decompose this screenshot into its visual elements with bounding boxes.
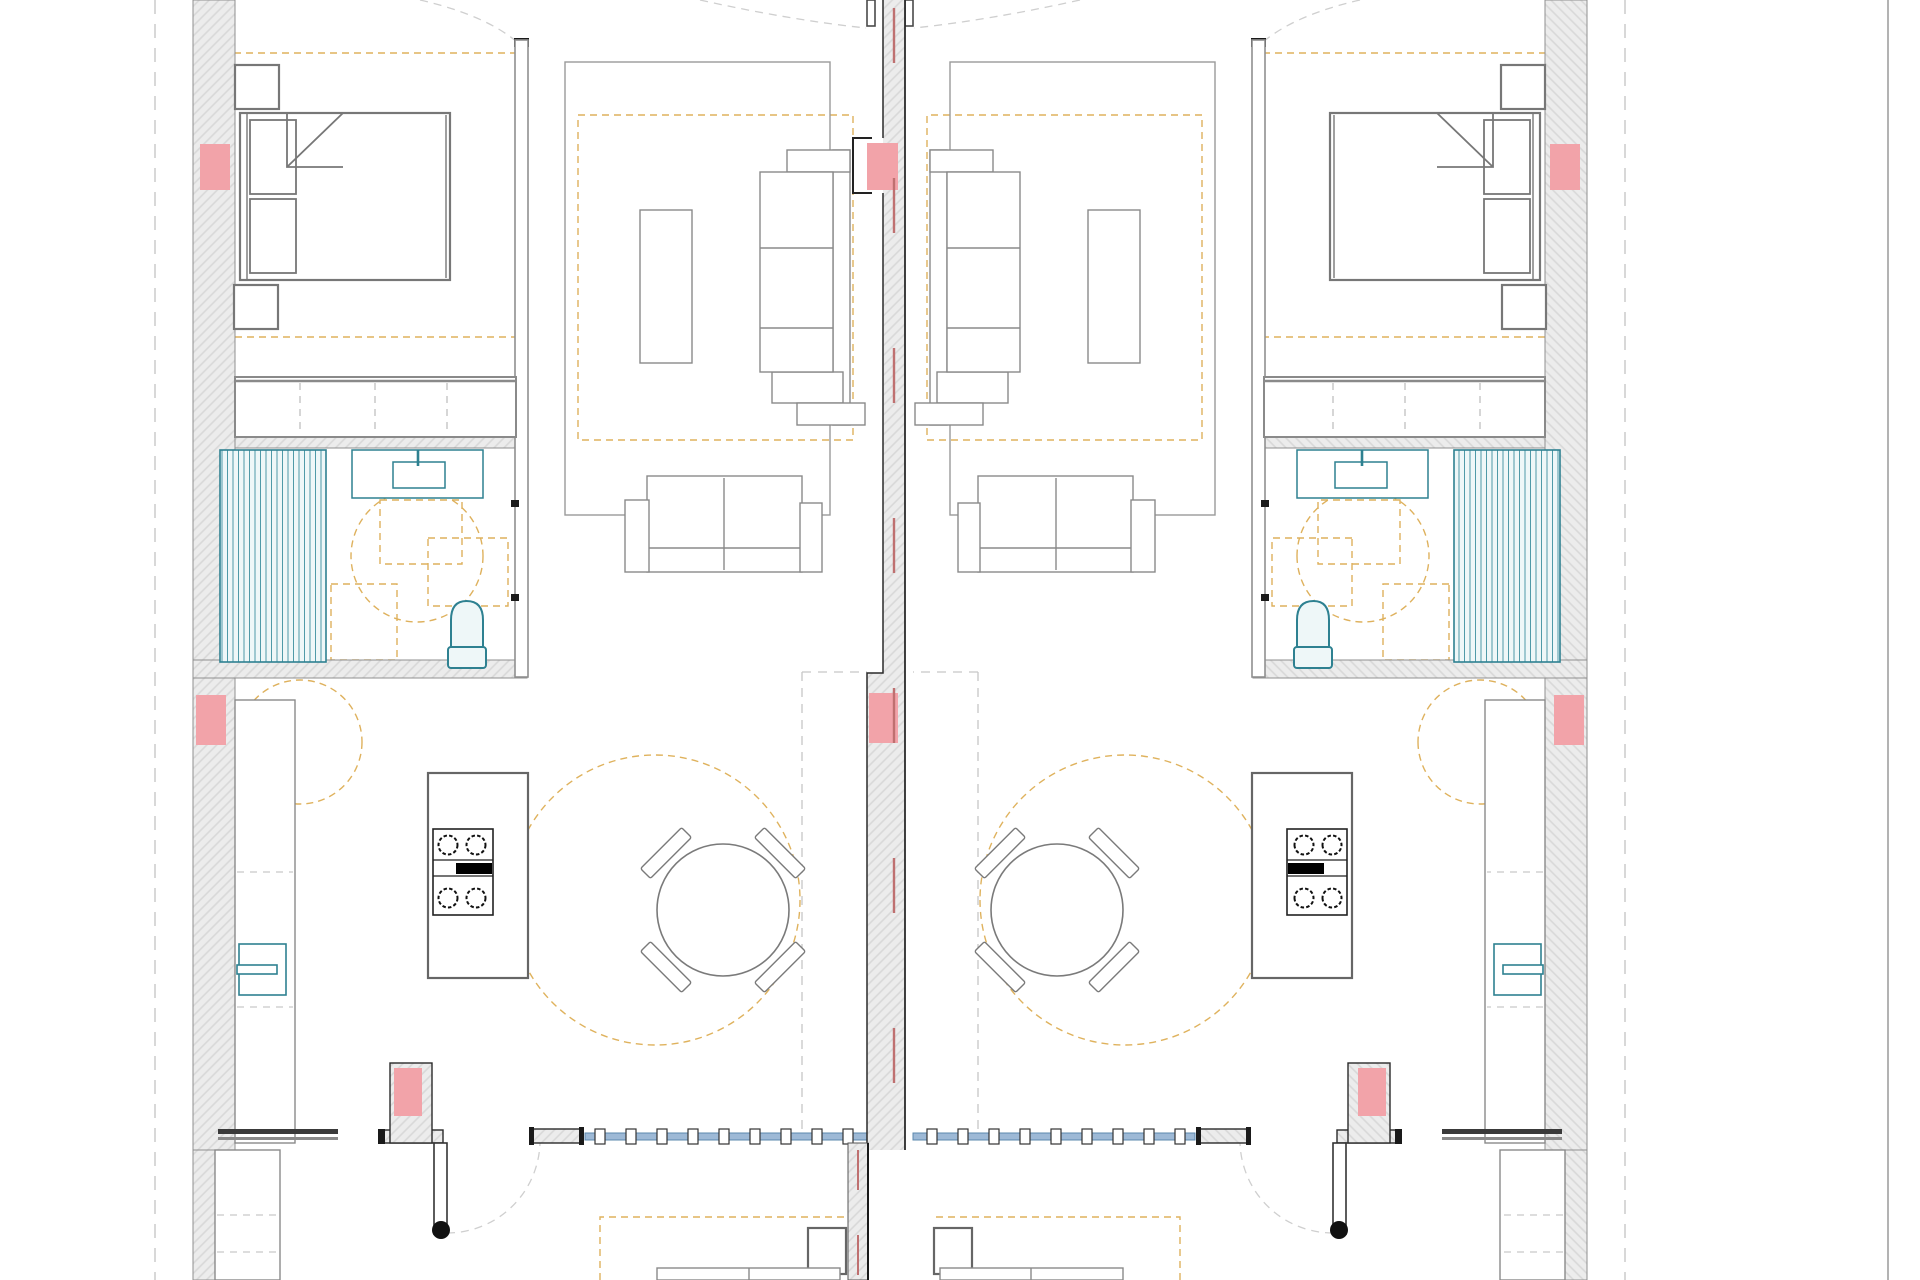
mullions bbox=[595, 1129, 853, 1144]
toilet-tank bbox=[448, 647, 486, 668]
nightstand bbox=[235, 65, 279, 109]
sink-tap bbox=[237, 965, 277, 974]
shower-tray bbox=[220, 450, 326, 662]
wardrobe-strip bbox=[235, 377, 516, 437]
bathroom-north-wall bbox=[235, 437, 527, 448]
mullion bbox=[626, 1129, 636, 1144]
cooktop-control-strip bbox=[456, 863, 492, 874]
pillow bbox=[250, 120, 296, 194]
jamb-cap bbox=[579, 1127, 584, 1145]
glazed-window-strip bbox=[585, 1129, 867, 1144]
bedroom-bathroom-partition bbox=[515, 40, 528, 677]
clearance-square bbox=[331, 584, 397, 660]
jamb-nub bbox=[511, 594, 519, 601]
mullion bbox=[657, 1129, 667, 1144]
mullion bbox=[688, 1129, 698, 1144]
dining-table bbox=[657, 844, 789, 976]
toilet-bowl bbox=[451, 601, 483, 649]
vanity-sink bbox=[352, 450, 483, 498]
loveseat-armrest bbox=[800, 503, 822, 572]
clearance-square bbox=[380, 500, 462, 564]
pillow bbox=[250, 199, 296, 273]
terrace-side-table bbox=[808, 1228, 846, 1274]
loveseat bbox=[625, 476, 822, 572]
sectional-sofa bbox=[760, 150, 865, 425]
kitchen-island bbox=[428, 773, 528, 978]
party-wall bbox=[848, 0, 905, 1280]
outer-wall-lower bbox=[193, 1150, 215, 1280]
counter-end-cap bbox=[218, 1129, 338, 1134]
toilet bbox=[448, 601, 486, 668]
balcony-door-jamb bbox=[867, 0, 875, 26]
column-block bbox=[394, 1068, 422, 1116]
kitchen-sink bbox=[237, 944, 286, 995]
door-leaf bbox=[434, 1143, 447, 1234]
sofa-corner bbox=[797, 403, 865, 425]
entry-door bbox=[432, 1143, 450, 1239]
jamb-cap bbox=[378, 1129, 385, 1144]
outdoor-sofa-partial bbox=[657, 1268, 840, 1280]
column-block bbox=[200, 144, 230, 190]
corridor-guide-lines bbox=[802, 672, 867, 1130]
floor-plan-page bbox=[0, 0, 1920, 1280]
mullion bbox=[719, 1129, 729, 1144]
bedroom-door-swing-arc bbox=[420, 0, 517, 42]
mullion bbox=[750, 1129, 760, 1144]
balcony-door-swing-arc bbox=[700, 0, 866, 28]
sofa-armrest bbox=[772, 372, 843, 403]
column-block bbox=[196, 695, 226, 745]
mullion bbox=[812, 1129, 822, 1144]
floor-plan-drawing bbox=[0, 0, 1920, 1280]
mullion bbox=[843, 1129, 853, 1144]
sofa-armrest bbox=[787, 150, 850, 172]
apartment-unit-left bbox=[193, 0, 875, 1280]
mullion bbox=[781, 1129, 791, 1144]
coffee-table bbox=[640, 210, 692, 363]
mullion bbox=[595, 1129, 605, 1144]
clearance-square bbox=[428, 538, 508, 606]
jamb-cap bbox=[529, 1127, 534, 1145]
dining-set bbox=[641, 828, 806, 993]
counter-end-line bbox=[218, 1137, 338, 1140]
entry-door-swing-arc bbox=[447, 1143, 540, 1233]
sofa-seat bbox=[760, 172, 833, 372]
double-bed bbox=[240, 113, 450, 280]
party-wall-mid bbox=[867, 673, 905, 1150]
apartment-unit-right-mirrored bbox=[905, 0, 1587, 1280]
nightstand bbox=[234, 285, 278, 329]
loveseat-armrest bbox=[625, 500, 649, 572]
counter-body bbox=[235, 700, 295, 1143]
jamb-nub bbox=[511, 500, 519, 507]
window-jamb-wall bbox=[532, 1129, 582, 1143]
door-hinge bbox=[432, 1221, 450, 1239]
